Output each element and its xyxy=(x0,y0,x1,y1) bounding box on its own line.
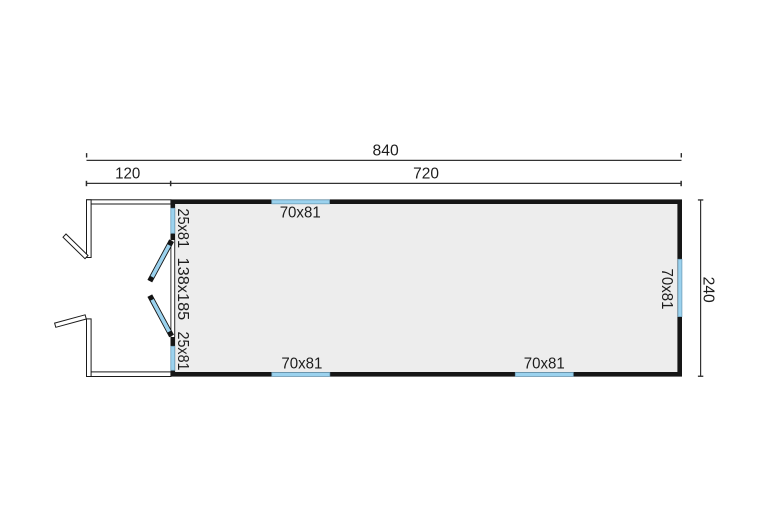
svg-text:120: 120 xyxy=(115,166,140,183)
svg-text:138x185: 138x185 xyxy=(174,258,191,321)
svg-text:70x81: 70x81 xyxy=(658,269,675,310)
svg-text:240: 240 xyxy=(699,277,716,303)
svg-text:25x81: 25x81 xyxy=(174,208,191,248)
svg-text:70x81: 70x81 xyxy=(280,204,321,221)
svg-text:840: 840 xyxy=(373,142,399,159)
svg-text:25x81: 25x81 xyxy=(174,332,191,371)
svg-text:720: 720 xyxy=(413,166,439,183)
svg-text:70x81: 70x81 xyxy=(281,355,322,372)
svg-text:70x81: 70x81 xyxy=(524,355,565,372)
